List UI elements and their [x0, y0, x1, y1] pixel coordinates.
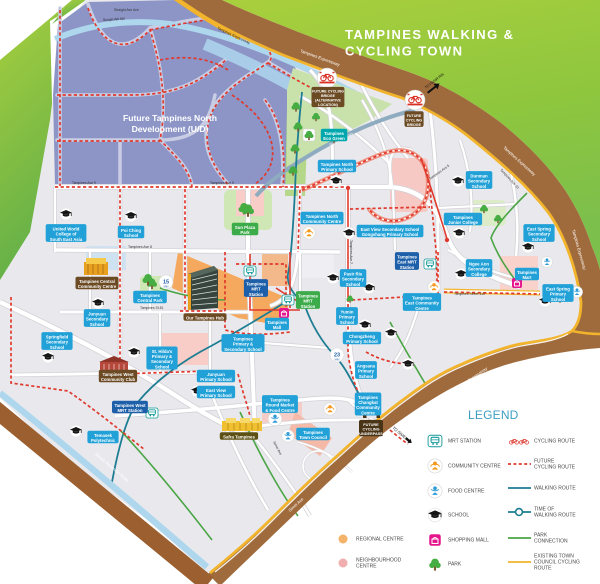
svg-text:MIN: MIN	[335, 358, 340, 362]
svg-text:Tampines Ave 9: Tampines Ave 9	[210, 181, 234, 185]
svg-text:TemasekPolytechnic: TemasekPolytechnic	[91, 433, 116, 443]
svg-text:TampinesTown Council: TampinesTown Council	[299, 430, 327, 440]
svg-text:Our Tampines Hub: Our Tampines Hub	[186, 316, 224, 321]
svg-text:Tampines WestCommunity Club: Tampines WestCommunity Club	[101, 372, 136, 382]
svg-text:FUTURECYCLINGBRIDGE: FUTURECYCLINGBRIDGE	[406, 114, 422, 127]
svg-text:Tampines NorthCommunity Centre: Tampines NorthCommunity Centre	[303, 214, 342, 224]
svg-text:Safra Tampines: Safra Tampines	[223, 435, 255, 440]
svg-text:TampinesCentral Park: TampinesCentral Park	[137, 293, 163, 303]
svg-text:MIN: MIN	[164, 285, 169, 289]
svg-text:Tampines St 81: Tampines St 81	[140, 306, 163, 310]
svg-text:YuminPrimarySchool: YuminPrimarySchool	[339, 309, 356, 324]
svg-text:CYCLING ROUTE: CYCLING ROUTE	[534, 439, 576, 445]
svg-text:TampinesEco Green: TampinesEco Green	[323, 131, 345, 141]
svg-text:SCHOOL: SCHOOL	[448, 513, 469, 519]
svg-text:WALKING ROUTE: WALKING ROUTE	[534, 486, 576, 492]
svg-text:Tampines NorthPrimary School: Tampines NorthPrimary School	[321, 162, 354, 172]
svg-text:Tampines Ave 9: Tampines Ave 9	[72, 181, 96, 185]
svg-text:Future Tampines NorthDevelopme: Future Tampines NorthDevelopment (U/D)	[123, 113, 217, 134]
svg-text:REGIONAL CENTRE: REGIONAL CENTRE	[356, 537, 404, 543]
svg-text:Straight Ave Ave: Straight Ave Ave	[114, 8, 139, 12]
svg-text:Tampines CentralCommunity Cent: Tampines CentralCommunity Centre	[78, 279, 117, 289]
svg-text:LEGEND: LEGEND	[468, 408, 519, 422]
svg-text:Tampines Ave 7: Tampines Ave 7	[349, 240, 353, 264]
svg-text:East View Secondary SchoolGong: East View Secondary SchoolGongshang Prim…	[361, 227, 420, 237]
svg-text:ChongzhengPrimary School: ChongzhengPrimary School	[346, 334, 378, 344]
svg-text:MRT STATION: MRT STATION	[448, 439, 481, 445]
svg-text:AngsanaPrimarySchool: AngsanaPrimarySchool	[357, 363, 376, 378]
svg-text:Tampines Street 110: Tampines Street 110	[454, 292, 485, 296]
svg-text:FOOD CENTRE: FOOD CENTRE	[448, 489, 485, 495]
svg-text:Tampines WestMRT Station: Tampines WestMRT Station	[114, 403, 146, 413]
svg-text:SHOPPING MALL: SHOPPING MALL	[448, 538, 489, 544]
svg-text:Tampines Ave 8: Tampines Ave 8	[128, 245, 152, 249]
svg-text:PARK: PARK	[448, 562, 462, 568]
svg-text:COMMUNITY CENTRE: COMMUNITY CENTRE	[448, 464, 501, 470]
